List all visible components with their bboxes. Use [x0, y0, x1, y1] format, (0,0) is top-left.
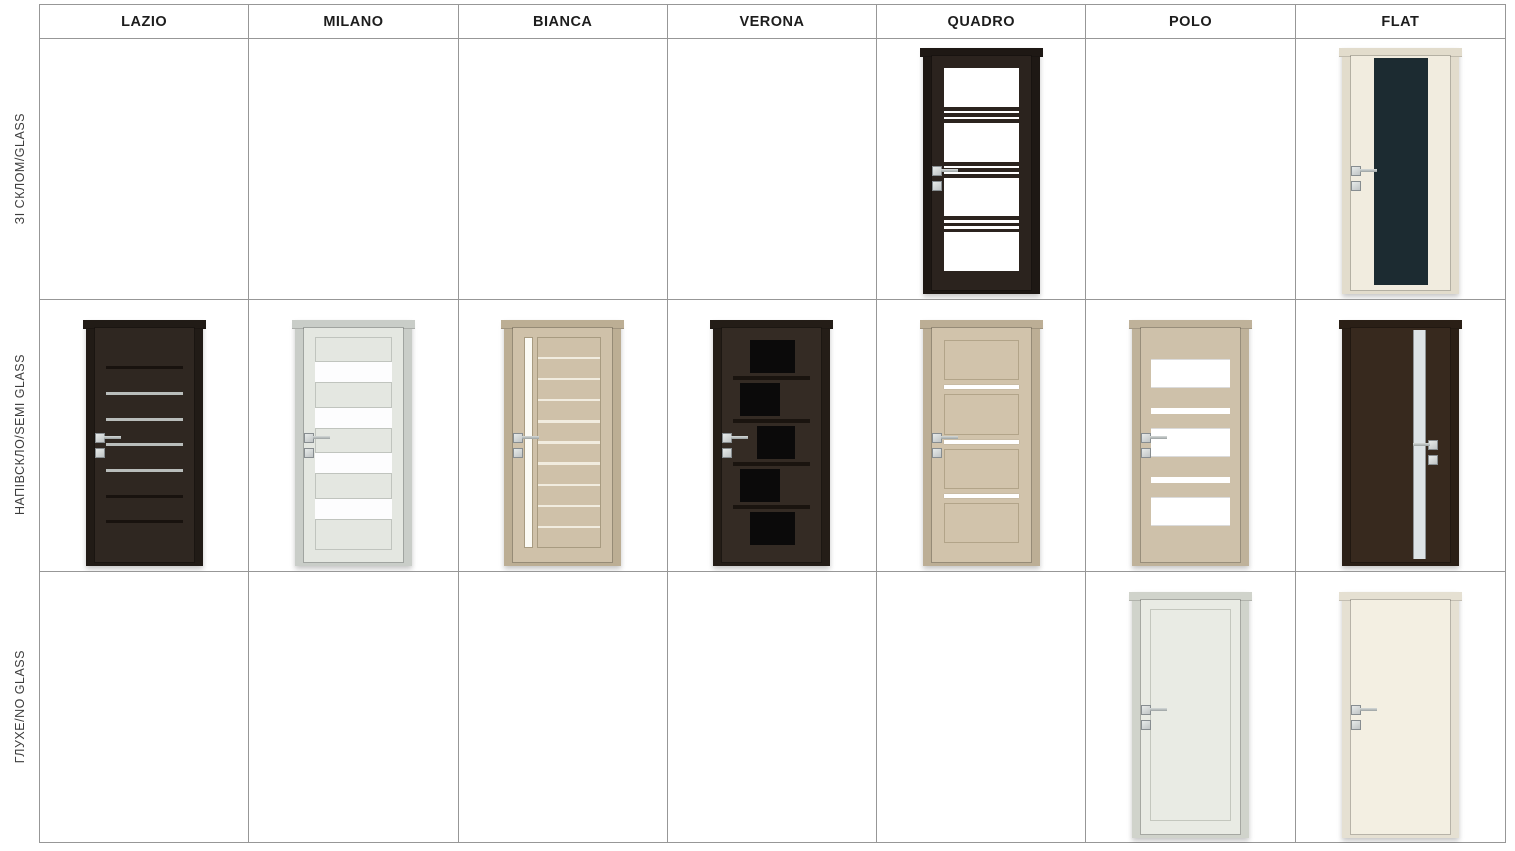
black-glass [757, 426, 796, 459]
handle-lever [731, 436, 748, 439]
wood-slat [538, 486, 600, 505]
wood-panel [944, 503, 1019, 543]
handle-lock [304, 448, 314, 458]
door-leaf [1141, 600, 1240, 834]
wood-slat [106, 395, 183, 418]
handle-lever [941, 436, 958, 439]
door-flat-glass [1342, 48, 1459, 294]
cell-no-glass-polo [1086, 572, 1295, 843]
wood-band [733, 466, 810, 505]
row-label-glass: ЗІ СКЛОМ/GLASS [13, 113, 27, 224]
door-flat-no-glass [1342, 592, 1459, 838]
door-leaf [1351, 56, 1450, 290]
wood-band [1151, 526, 1230, 554]
cell-glass-polo [1086, 39, 1295, 300]
cell-no-glass-bianca [459, 572, 668, 843]
glass-pane [944, 232, 1019, 271]
wood-band [1151, 388, 1230, 408]
wood-band [733, 380, 810, 419]
glass-pane [944, 68, 1019, 107]
glass-band [315, 499, 392, 519]
column-header-verona: VERONA [668, 5, 877, 39]
glass-stripe [944, 117, 1019, 120]
door-handle [304, 433, 334, 463]
cell-glass-flat [1296, 39, 1505, 300]
black-glass [740, 383, 780, 416]
handle-lever [1360, 708, 1377, 711]
wood-band [315, 382, 392, 408]
handle-lock [1351, 181, 1361, 191]
wood-band [315, 473, 392, 499]
cell-semi-glass-verona [668, 300, 877, 572]
door-catalog-page: ЗІ СКЛОМ/GLASS НАПІВСКЛО/SEMI GLASS ГЛУХ… [0, 0, 1515, 851]
glass-band [315, 362, 392, 382]
table-body [40, 39, 1505, 843]
door-polo-no-glass [1132, 592, 1249, 838]
door-polo-semi [1132, 320, 1249, 566]
wood-band [315, 337, 392, 362]
glass-band [1151, 359, 1230, 389]
door-quadro-semi [923, 320, 1040, 566]
column-header-bianca: BIANCA [459, 5, 668, 39]
wood-band [315, 519, 392, 550]
row-label-box-semi-glass: НАПІВСКЛО/SEMI GLASS [0, 299, 39, 571]
wood-slat [538, 528, 600, 547]
door-milano-semi [295, 320, 412, 566]
handle-lock [513, 448, 523, 458]
cell-no-glass-lazio [40, 572, 249, 843]
cell-glass-lazio [40, 39, 249, 300]
rail [944, 216, 1019, 232]
black-glass [740, 469, 780, 502]
wood-slat [106, 472, 183, 495]
row-label-no-glass: ГЛУХЕ/NO GLASS [13, 650, 27, 763]
cell-semi-glass-bianca [459, 300, 668, 572]
door-handle [1141, 433, 1171, 463]
handle-lock [1351, 720, 1361, 730]
glass-stripe [944, 220, 1019, 223]
door-leaf [1141, 328, 1240, 562]
column-header-flat: FLAT [1296, 5, 1505, 39]
rail [944, 489, 1019, 503]
door-handle [1141, 705, 1171, 735]
door-verona-semi [713, 320, 830, 566]
handle-lock [95, 448, 105, 458]
door-leaf [1351, 600, 1450, 834]
cell-no-glass-quadro [877, 572, 1086, 843]
door-leaf [304, 328, 403, 562]
cell-semi-glass-lazio [40, 300, 249, 572]
door-handle [1351, 166, 1381, 196]
handle-lever [1150, 436, 1167, 439]
wood-slat [106, 498, 183, 521]
cell-semi-glass-flat [1296, 300, 1505, 572]
glass-stripe [944, 385, 1019, 389]
cell-glass-milano [249, 39, 458, 300]
cell-no-glass-verona [668, 572, 877, 843]
cell-semi-glass-quadro [877, 300, 1086, 572]
glass-band [315, 408, 392, 428]
door-quadro-glass [923, 48, 1040, 294]
handle-lock [1428, 455, 1438, 465]
wood-band [733, 509, 810, 548]
door-bianca-semi [504, 320, 621, 566]
wood-panel [944, 340, 1019, 380]
black-glass [750, 340, 795, 373]
handle-lever [522, 436, 539, 439]
cell-glass-bianca [459, 39, 668, 300]
wood-slat [538, 465, 600, 484]
cell-semi-glass-polo [1086, 300, 1295, 572]
cell-glass-verona [668, 39, 877, 300]
glass-panel [1374, 58, 1428, 285]
cell-semi-glass-milano [249, 300, 458, 572]
glass-stripe [944, 111, 1019, 114]
door-handle [513, 433, 543, 463]
wood-slat [538, 507, 600, 526]
handle-lever [1413, 443, 1430, 446]
door-flat-semi [1342, 320, 1459, 566]
row-label-semi-glass: НАПІВСКЛО/SEMI GLASS [13, 354, 27, 515]
door-leaf [513, 328, 612, 562]
handle-lever [1360, 169, 1377, 172]
wood-slat [106, 523, 183, 546]
handle-lock [932, 448, 942, 458]
handle-lever [941, 169, 958, 172]
door-leaf [932, 328, 1031, 562]
door-handle [95, 433, 125, 463]
handle-lock [1141, 720, 1151, 730]
handle-lock [1141, 448, 1151, 458]
cell-glass-quadro [877, 39, 1086, 300]
wood-panel [944, 394, 1019, 434]
slat-area [537, 337, 601, 548]
wood-band [733, 337, 810, 376]
column-header-lazio: LAZIO [40, 5, 249, 39]
door-leaf [932, 56, 1031, 290]
wood-slat [538, 359, 600, 378]
table-header-row: LAZIO MILANO BIANCA VERONA QUADRO POLO F… [40, 5, 1505, 39]
wood-slat [106, 369, 183, 392]
door-lazio-semi [86, 320, 203, 566]
row-label-box-glass: ЗІ СКЛОМ/GLASS [0, 38, 39, 299]
door-leaf [95, 328, 194, 562]
wood-slat [538, 423, 600, 442]
rail [944, 380, 1019, 394]
glass-band [1151, 497, 1230, 527]
wood-slat [106, 338, 183, 366]
cell-no-glass-milano [249, 572, 458, 843]
handle-lock [932, 181, 942, 191]
column-header-milano: MILANO [249, 5, 458, 39]
column-header-quadro: QUADRO [877, 5, 1086, 39]
wood-slat [538, 338, 600, 357]
door-handle [1428, 440, 1458, 470]
handle-lever [104, 436, 121, 439]
handle-lever [1150, 708, 1167, 711]
column-header-polo: POLO [1086, 5, 1295, 39]
wood-slat [538, 380, 600, 399]
door-handle [722, 433, 752, 463]
handle-lever [313, 436, 330, 439]
glass-stripe [944, 494, 1019, 498]
glass-stripe [944, 226, 1019, 229]
wood-slat [538, 401, 600, 420]
handle-lock [722, 448, 732, 458]
door-leaf [722, 328, 821, 562]
door-handle [932, 433, 962, 463]
door-handle [932, 166, 962, 196]
glass-pane [944, 123, 1019, 162]
door-leaf [1351, 328, 1450, 562]
wood-band [1151, 414, 1230, 427]
wood-band [1151, 483, 1230, 496]
wood-slat [538, 444, 600, 463]
row-label-box-no-glass: ГЛУХЕ/NO GLASS [0, 571, 39, 843]
door-matrix-table: LAZIO MILANO BIANCA VERONA QUADRO POLO F… [39, 4, 1506, 843]
cell-no-glass-flat [1296, 572, 1505, 843]
black-glass [750, 512, 795, 545]
door-handle [1351, 705, 1381, 735]
wood-band [1151, 335, 1230, 359]
rail [944, 107, 1019, 123]
